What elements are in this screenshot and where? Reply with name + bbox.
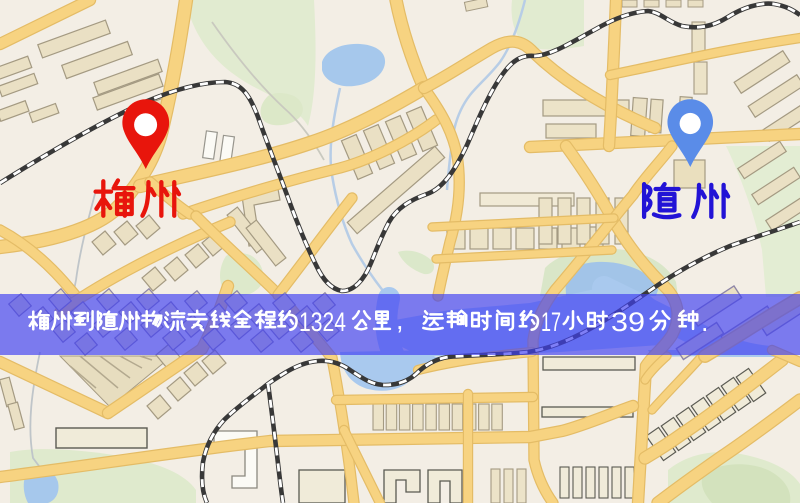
svg-text:,: , xyxy=(396,305,404,335)
svg-text:39: 39 xyxy=(611,307,645,337)
svg-text:1324: 1324 xyxy=(299,307,346,337)
svg-text:.: . xyxy=(701,307,709,337)
svg-text:17: 17 xyxy=(541,307,561,337)
